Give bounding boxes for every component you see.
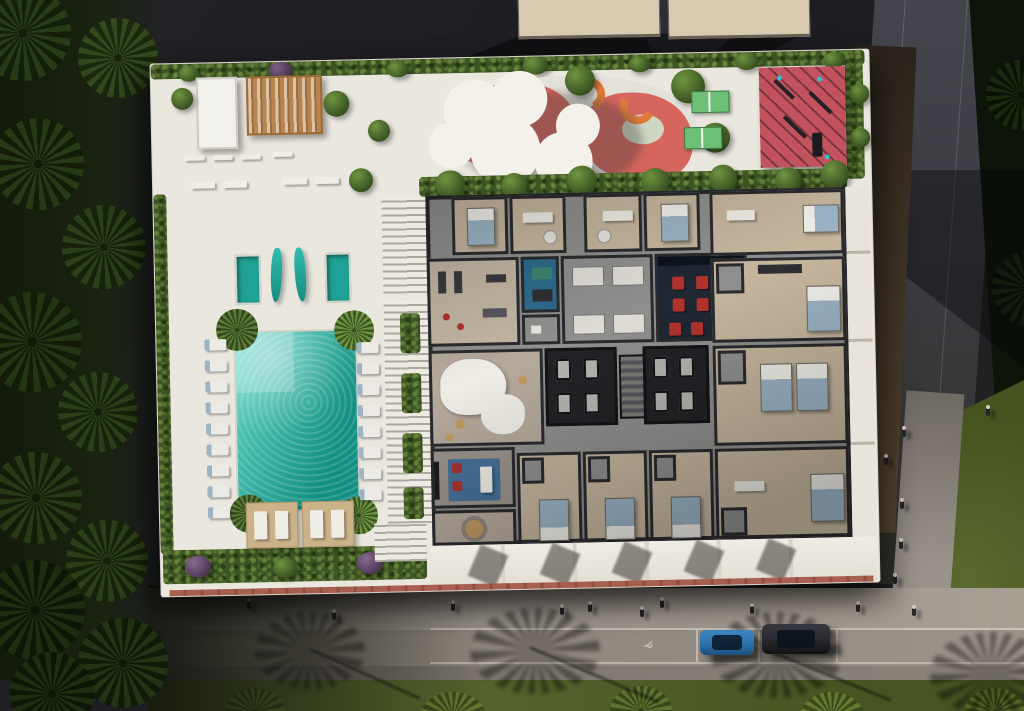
curvy-sofa <box>480 394 525 435</box>
treatment-bed <box>613 313 645 334</box>
hedge-right-top <box>844 54 865 179</box>
garden-tree <box>171 88 193 110</box>
gym-dot <box>825 154 830 159</box>
garden-tree <box>368 120 390 142</box>
pedestrian <box>660 599 664 608</box>
gym-dot <box>817 77 822 82</box>
round-table <box>455 419 465 429</box>
pedestrian <box>912 607 916 616</box>
round-table <box>445 433 453 441</box>
lounge-chair-column-right <box>356 342 384 512</box>
cabana-lounger <box>310 510 324 538</box>
lounge-chair-column-left <box>204 339 232 529</box>
bathroom <box>654 455 677 481</box>
pedestrian <box>893 575 897 584</box>
elevator-cabin <box>679 390 694 411</box>
sun-lounger <box>315 177 339 185</box>
garden-bench <box>240 154 260 159</box>
gym-machine <box>486 274 506 282</box>
spa-room <box>521 256 560 313</box>
pedestrian <box>856 603 860 612</box>
sofa <box>734 481 764 492</box>
gym-room <box>427 257 521 347</box>
apartment-unit <box>709 189 844 256</box>
cabana-lounger <box>275 511 289 539</box>
cabana-lounger <box>331 510 345 538</box>
apartment-living-room <box>583 193 642 252</box>
bed <box>605 498 636 541</box>
elevator-core <box>545 347 619 426</box>
shrub <box>386 61 408 77</box>
elevator-cabin <box>556 359 571 380</box>
round-table <box>597 229 611 243</box>
building <box>149 49 880 598</box>
treatment-bed <box>572 266 604 287</box>
gym-machine <box>438 271 446 293</box>
walkway-planter <box>400 313 421 353</box>
pedestrian <box>986 407 990 416</box>
massage-table <box>532 267 552 279</box>
shrub <box>628 56 650 72</box>
elevator-cabin <box>653 357 668 378</box>
pedestrian <box>900 500 904 509</box>
pingpong-net <box>701 128 703 148</box>
walkway-planter <box>403 487 424 519</box>
apartment-unit <box>715 446 851 539</box>
bathroom <box>716 263 745 294</box>
gym-equipment <box>808 91 832 115</box>
sofa <box>523 212 553 223</box>
apartment-unit-double <box>713 343 849 446</box>
palm-tree <box>62 205 146 289</box>
sofa <box>727 210 755 221</box>
shrub <box>849 84 869 104</box>
gym-equipment <box>783 115 807 139</box>
lounge-chair <box>359 468 381 479</box>
parked-car-blue <box>700 630 754 655</box>
tv-unit <box>434 462 440 500</box>
pedestrian <box>884 456 888 465</box>
pedestrian <box>560 606 564 615</box>
kitchen-counter <box>758 264 802 274</box>
bed <box>671 496 702 539</box>
pedestrian <box>588 603 592 612</box>
cabana <box>246 502 299 549</box>
sun-lounger <box>283 177 307 185</box>
garden-tree <box>349 168 373 192</box>
pedestrian <box>750 605 754 614</box>
gym-weight <box>443 313 450 320</box>
palm-tree <box>58 372 138 452</box>
slatted-walkway <box>381 197 427 294</box>
adjacent-roof <box>668 0 811 39</box>
elevator-cabin <box>584 392 599 413</box>
restroom <box>522 314 561 345</box>
bathroom <box>718 350 747 385</box>
lounge-chair <box>357 384 379 395</box>
car-windshield <box>712 635 742 650</box>
terrace-divider <box>847 251 871 255</box>
lounge-chair <box>359 447 381 458</box>
elevator-cabin <box>556 393 571 414</box>
apartment-living-room <box>509 195 566 254</box>
dining-table <box>465 520 483 538</box>
lounge-chair <box>358 426 380 437</box>
elevator-cabin <box>653 391 668 412</box>
shrub <box>734 52 758 70</box>
lounge-chair <box>205 360 227 371</box>
cinema-seat <box>669 323 681 336</box>
treatment-bed <box>612 265 644 286</box>
dining-area <box>432 509 517 546</box>
palm-tree <box>78 18 158 98</box>
terrace-divider <box>848 339 872 343</box>
gym-equipment <box>773 79 795 100</box>
bed <box>796 362 829 411</box>
pingpong-net <box>708 92 710 112</box>
walkway-planter <box>401 373 422 413</box>
garden-tree <box>323 90 350 117</box>
garden-bench <box>272 152 292 157</box>
sofa <box>603 211 633 222</box>
roof-structure <box>196 77 238 150</box>
walkway-planter <box>402 433 423 473</box>
bed <box>467 207 496 246</box>
media-lounge <box>431 447 516 509</box>
bathroom <box>588 456 611 482</box>
gym-weight <box>457 323 464 330</box>
sun-lounger <box>191 181 215 189</box>
gym-machine <box>454 271 462 293</box>
wood-pergola <box>246 75 323 136</box>
lounge-chair <box>207 486 229 497</box>
bathroom <box>721 507 748 536</box>
gym-equipment <box>812 133 823 157</box>
car-windshield <box>777 630 815 648</box>
round-table <box>543 230 557 244</box>
pedestrian <box>899 540 903 549</box>
parked-car-dark <box>762 624 830 654</box>
bed <box>806 285 841 332</box>
apartment-bedroom <box>451 196 508 255</box>
garden-bench <box>184 155 204 160</box>
bathroom <box>522 457 545 483</box>
terrace-divider <box>851 441 875 445</box>
fitness-court <box>759 66 847 168</box>
elevator-core <box>643 345 711 424</box>
apartment-unit <box>517 452 583 543</box>
elevator-cabin <box>584 358 599 379</box>
lounge-chair <box>356 342 378 353</box>
apartment-unit <box>583 450 649 541</box>
lounge-chair <box>206 402 228 413</box>
plunge-pool <box>324 252 351 303</box>
pedestrian <box>640 608 644 617</box>
adjacent-roof <box>518 0 661 39</box>
fixture <box>531 325 541 333</box>
shade-sail <box>293 247 308 302</box>
gym-dot <box>777 75 782 80</box>
tree-shade-overlay <box>148 585 488 711</box>
cinema-seat <box>673 298 685 311</box>
garden-bench <box>212 155 232 160</box>
treatment-bed <box>573 314 605 335</box>
cabana-lounger <box>254 511 268 539</box>
treatment-rooms <box>561 254 655 344</box>
pingpong-table <box>684 127 722 150</box>
lounge-chair <box>205 381 227 392</box>
plunge-pool <box>235 254 262 305</box>
cabana <box>302 500 355 547</box>
stairwell <box>619 354 646 419</box>
pingpong-table <box>691 90 729 113</box>
bed <box>803 204 840 233</box>
apartment-unit <box>649 449 715 540</box>
stair-bridge <box>374 523 427 562</box>
lounge-chair <box>207 465 229 476</box>
lounge-room <box>429 348 545 446</box>
massage-table <box>532 289 552 301</box>
lounge-chair <box>358 405 380 416</box>
apartment-unit <box>711 256 847 343</box>
pedestrian <box>902 428 906 437</box>
bed <box>539 499 570 542</box>
sun-lounger <box>223 181 247 189</box>
apartment-bedroom <box>643 192 700 251</box>
cinema-seat <box>697 298 709 311</box>
lounge-chair <box>206 423 228 434</box>
lounge-chair <box>359 489 381 500</box>
red-armchair <box>452 463 462 473</box>
cinema-seat <box>696 276 708 289</box>
cinema-seat <box>672 276 684 289</box>
bed <box>810 473 845 522</box>
cinema-seat <box>691 322 703 335</box>
accessible-parking-marking: ♿ <box>642 640 655 650</box>
shade-sail <box>270 248 283 302</box>
lounge-chair <box>206 444 228 455</box>
bed <box>661 203 690 242</box>
red-armchair <box>452 481 462 491</box>
lounge-chair <box>357 363 379 374</box>
elevator-cabin <box>679 356 694 377</box>
aerial-rendering: ♿ <box>0 0 1024 711</box>
bed <box>760 363 793 412</box>
gym-bench <box>483 308 507 318</box>
shrub <box>850 128 870 148</box>
lounge-chair <box>204 339 226 350</box>
round-table <box>518 376 527 385</box>
sofa <box>480 467 493 493</box>
lounge-chair <box>208 507 230 518</box>
stall-line <box>696 630 698 662</box>
